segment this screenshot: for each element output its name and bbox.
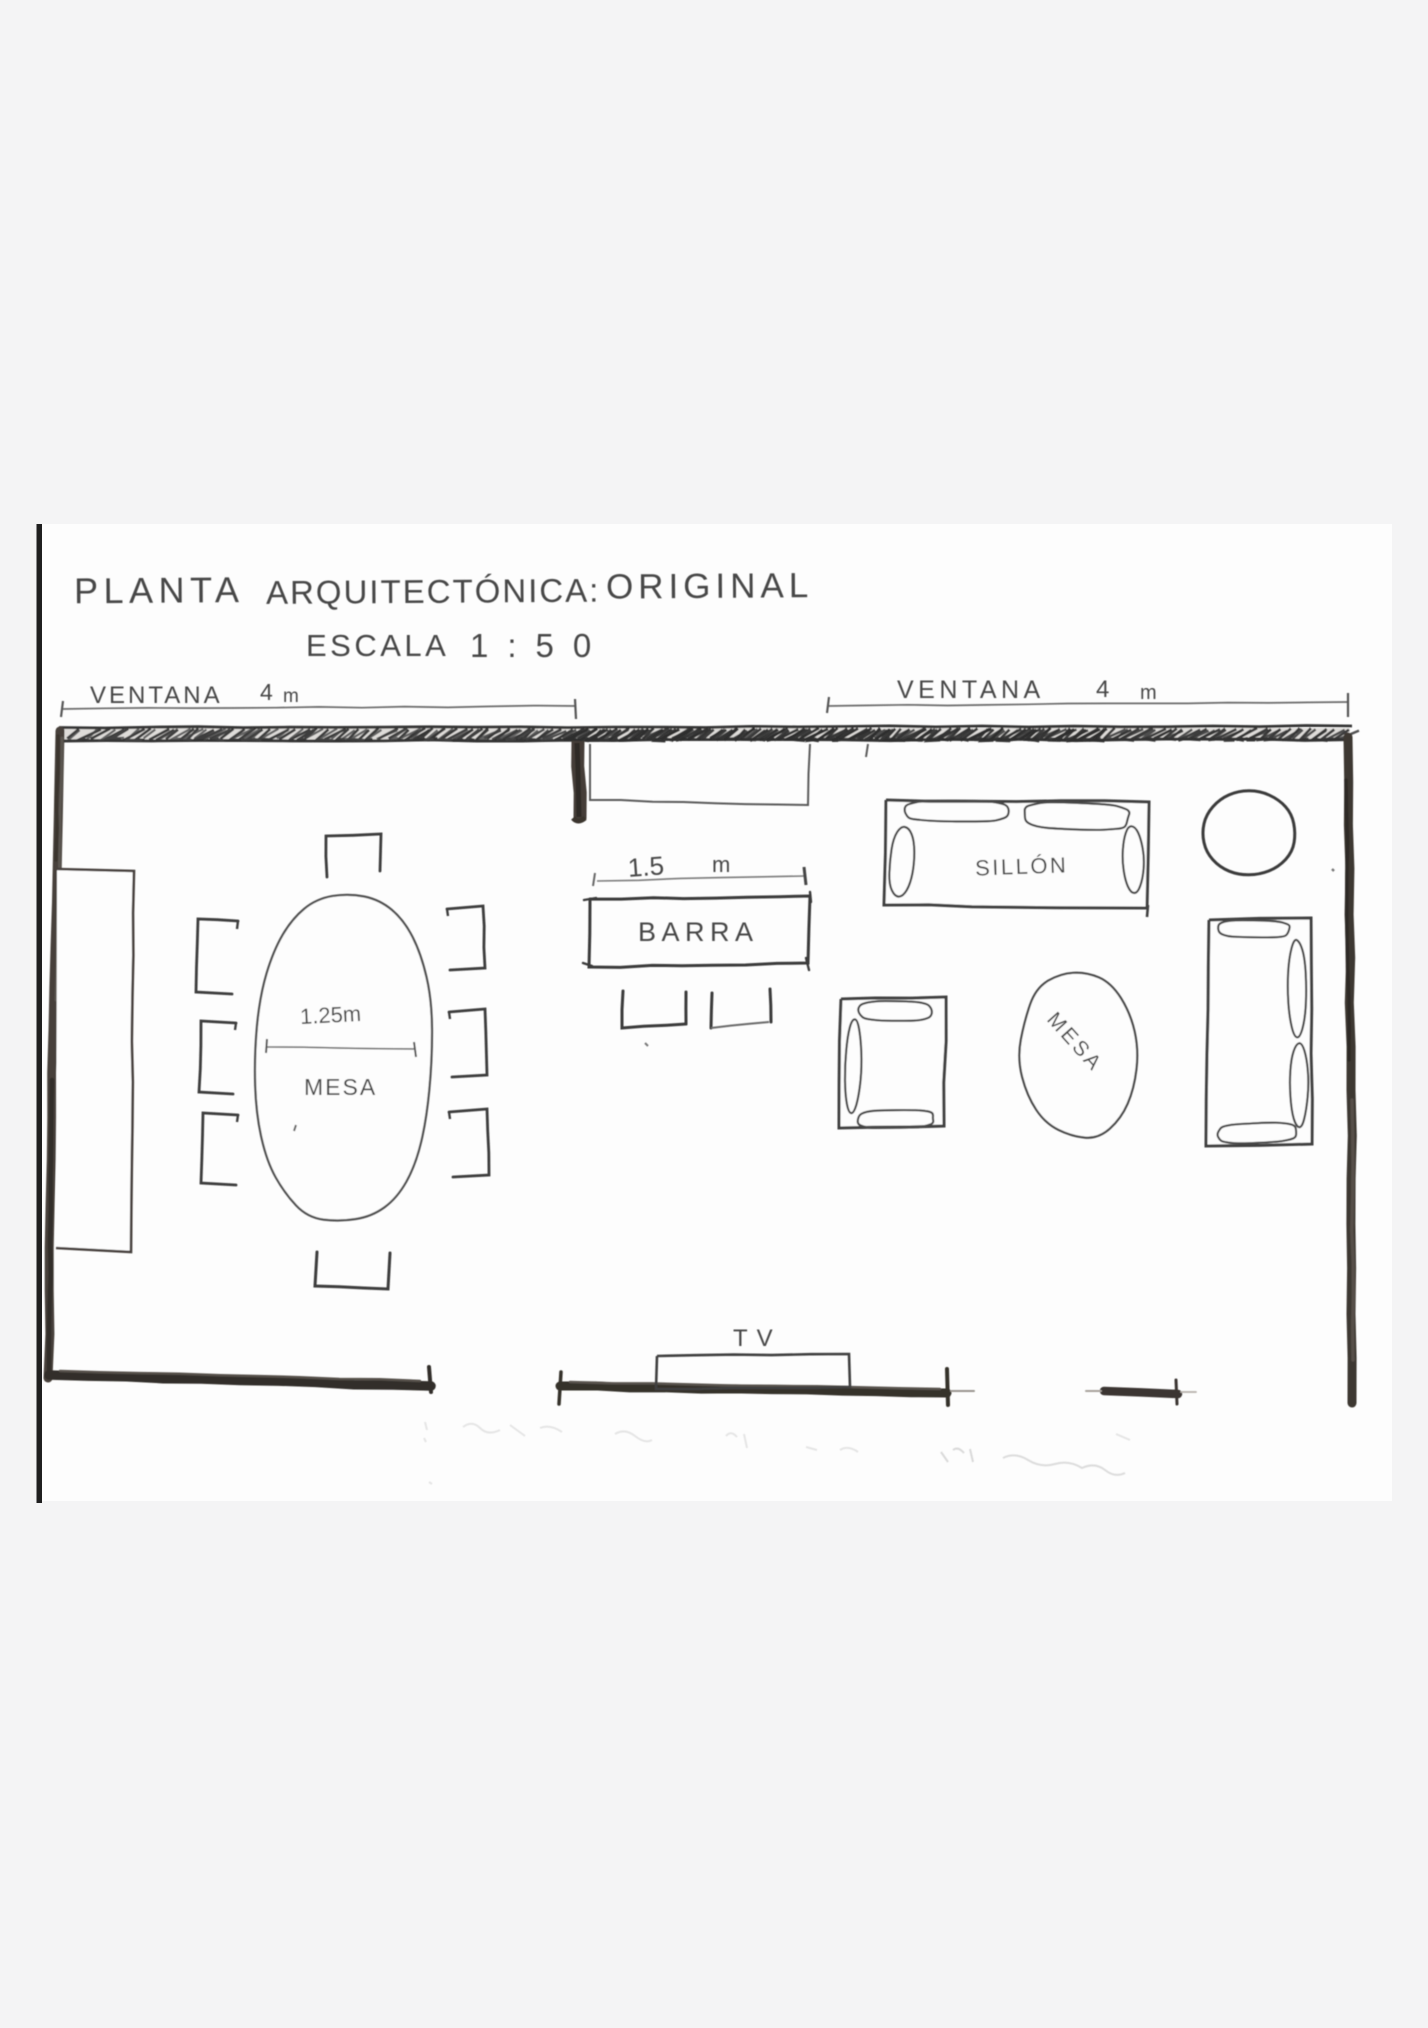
svg-text:MESA: MESA	[304, 1074, 377, 1100]
svg-text:4: 4	[1096, 676, 1109, 703]
svg-text:1:50: 1:50	[470, 627, 610, 664]
svg-text:m: m	[283, 686, 299, 707]
svg-text:SILLÓN: SILLÓN	[975, 852, 1069, 880]
svg-text:VENTANA: VENTANA	[897, 676, 1045, 704]
svg-text:m: m	[712, 852, 730, 877]
svg-text:ORIGINAL: ORIGINAL	[606, 566, 814, 606]
svg-text:1.5: 1.5	[627, 850, 665, 882]
svg-text:VENTANA: VENTANA	[90, 682, 223, 709]
svg-text:BARRA: BARRA	[638, 917, 759, 947]
svg-text:1.25m: 1.25m	[299, 1001, 361, 1029]
svg-text:4: 4	[260, 679, 273, 705]
svg-text:ESCALA: ESCALA	[306, 628, 449, 663]
svg-text:m: m	[1140, 682, 1157, 704]
svg-text:ARQUITECTÓNICA:: ARQUITECTÓNICA:	[266, 572, 601, 611]
svg-text:PLANTA: PLANTA	[74, 569, 245, 611]
svg-text:TV: TV	[733, 1325, 782, 1352]
